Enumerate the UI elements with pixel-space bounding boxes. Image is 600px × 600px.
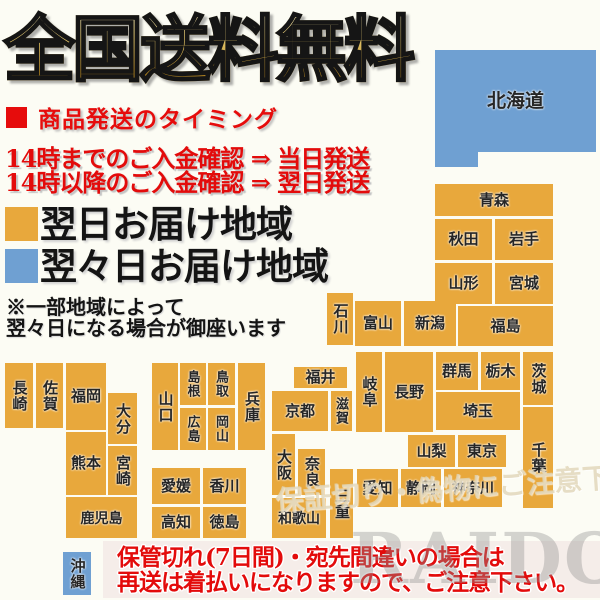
prefecture-oita: 大分 [108, 393, 137, 444]
prefecture-miyagi: 宮城 [495, 263, 553, 304]
prefecture-kumamoto: 熊本 [66, 432, 106, 495]
prefecture-hyogo: 兵庫 [238, 363, 265, 450]
prefecture-ibaraki: 茨城 [523, 352, 553, 405]
storage-warning-box: 保管切れ(7日間)・宛先間違いの場合は 再送は着払いになりますので、ご注意下さい… [103, 541, 600, 598]
prefecture-miyazaki: 宮崎 [108, 446, 137, 495]
prefecture-kagoshima: 鹿児島 [66, 497, 137, 538]
prefecture-mie: 三重 [330, 469, 353, 538]
prefecture-aomori: 青森 [435, 184, 553, 216]
shipping-info-graphic: 全国送料無料 商品発送のタイミング 14時までのご入金確認 ⇒ 当日発送 14時… [0, 0, 600, 600]
prefecture-kagawa: 香川 [203, 468, 246, 504]
prefecture-osaka: 大阪 [272, 434, 295, 495]
storage-warning-line-2: 再送は着払いになりますので、ご注意下さい。 [103, 570, 600, 595]
prefecture-hokkaido-leg [435, 150, 478, 167]
prefecture-fukushima: 福島 [458, 306, 553, 346]
prefecture-ishikawa: 石川 [327, 293, 353, 345]
prefecture-saitama: 埼玉 [436, 392, 520, 430]
prefecture-niigata: 新潟 [404, 301, 456, 346]
prefecture-tottori: 鳥取 [208, 363, 235, 405]
prefecture-nagasaki: 長崎 [5, 363, 33, 428]
prefecture-shizuoka: 静岡 [401, 469, 441, 507]
prefecture-okinawa: 沖縄 [63, 552, 91, 595]
prefecture-wakayama: 和歌山 [272, 498, 326, 538]
prefecture-yamaguchi: 山口 [152, 363, 178, 450]
prefecture-saga: 佐賀 [36, 363, 63, 428]
prefecture-akita: 秋田 [435, 219, 492, 260]
prefecture-kyoto: 京都 [272, 391, 328, 431]
prefecture-hiroshima: 広島 [180, 408, 206, 450]
prefecture-gunma: 群馬 [436, 352, 478, 390]
prefecture-nara: 奈良 [298, 449, 325, 495]
prefecture-aichi: 愛知 [357, 469, 398, 507]
prefecture-iwate: 岩手 [495, 219, 553, 260]
prefecture-yamanashi: 山梨 [408, 435, 455, 467]
prefecture-toyama: 富山 [355, 301, 401, 346]
prefecture-fukui: 福井 [294, 367, 347, 388]
prefecture-gifu: 岐阜 [356, 352, 382, 432]
prefecture-tochigi: 栃木 [481, 352, 520, 390]
prefecture-tokyo: 東京 [458, 435, 506, 467]
prefecture-chiba: 千葉 [523, 407, 553, 508]
prefecture-fukuoka: 福岡 [66, 363, 106, 430]
prefecture-shimane: 島根 [180, 363, 206, 405]
prefecture-nagano: 長野 [385, 352, 433, 432]
prefecture-yamagata: 山形 [435, 263, 492, 304]
prefecture-ehime: 愛媛 [152, 468, 200, 504]
prefecture-shiga: 滋賀 [331, 391, 352, 431]
prefecture-hokkaido: 北海道 [435, 50, 596, 152]
prefecture-tokushima: 徳島 [203, 507, 246, 538]
prefecture-kanagawa: 神奈川 [444, 469, 502, 507]
japan-map: 北海道青森秋田岩手山形宮城福島新潟石川富山福井京都滋賀岐阜長野群馬栃木茨城埼玉山… [0, 0, 600, 600]
storage-warning-line-1: 保管切れ(7日間)・宛先間違いの場合は [103, 541, 600, 570]
prefecture-okayama: 岡山 [208, 408, 235, 450]
prefecture-kochi: 高知 [152, 507, 200, 538]
